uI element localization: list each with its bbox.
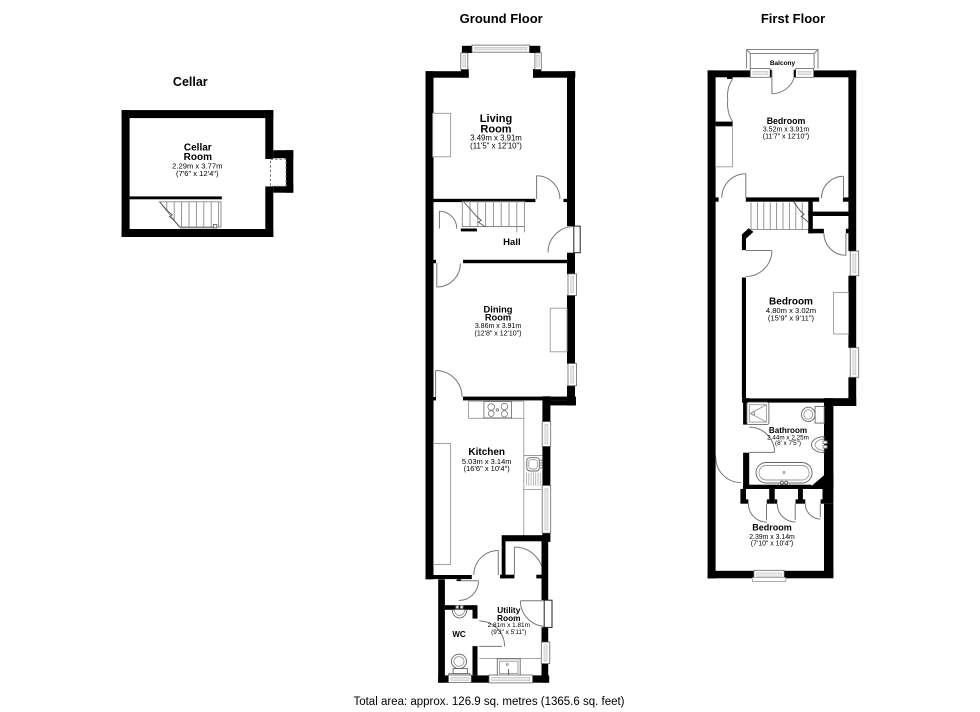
svg-text:Hall: Hall (503, 237, 520, 248)
svg-text:(15'9" x 9'11"): (15'9" x 9'11") (768, 314, 815, 323)
svg-text:(11'7" x 12'10"): (11'7" x 12'10") (763, 133, 809, 140)
svg-text:First Floor: First Floor (761, 11, 825, 26)
svg-text:Ground Floor: Ground Floor (460, 11, 543, 26)
svg-text:2.81m x 1.81m: 2.81m x 1.81m (488, 622, 530, 629)
svg-text:(11'5" x 12'10"): (11'5" x 12'10") (470, 141, 522, 150)
svg-text:3.86m x 3.91m: 3.86m x 3.91m (475, 323, 521, 330)
svg-text:(12'8" x 12'10"): (12'8" x 12'10") (475, 330, 522, 337)
svg-text:(7'10" x 10'4"): (7'10" x 10'4") (751, 541, 793, 548)
svg-text:Balcony: Balcony (770, 60, 796, 67)
svg-text:(8' x 7'5"): (8' x 7'5") (775, 440, 801, 447)
svg-text:Room: Room (485, 312, 511, 322)
svg-text:Bedroom: Bedroom (752, 523, 792, 533)
svg-text:WC: WC (452, 630, 466, 639)
svg-text:Cellar: Cellar (173, 75, 208, 89)
svg-text:(7'6" x 12'4"): (7'6" x 12'4") (176, 169, 219, 178)
svg-text:Bedroom: Bedroom (767, 116, 806, 126)
svg-text:(9'3" x 5'11"): (9'3" x 5'11") (491, 629, 526, 636)
svg-text:(16'6" x 10'4"): (16'6" x 10'4") (464, 464, 511, 473)
svg-text:Total area: approx. 126.9 sq.: Total area: approx. 126.9 sq. metres (13… (353, 696, 624, 708)
